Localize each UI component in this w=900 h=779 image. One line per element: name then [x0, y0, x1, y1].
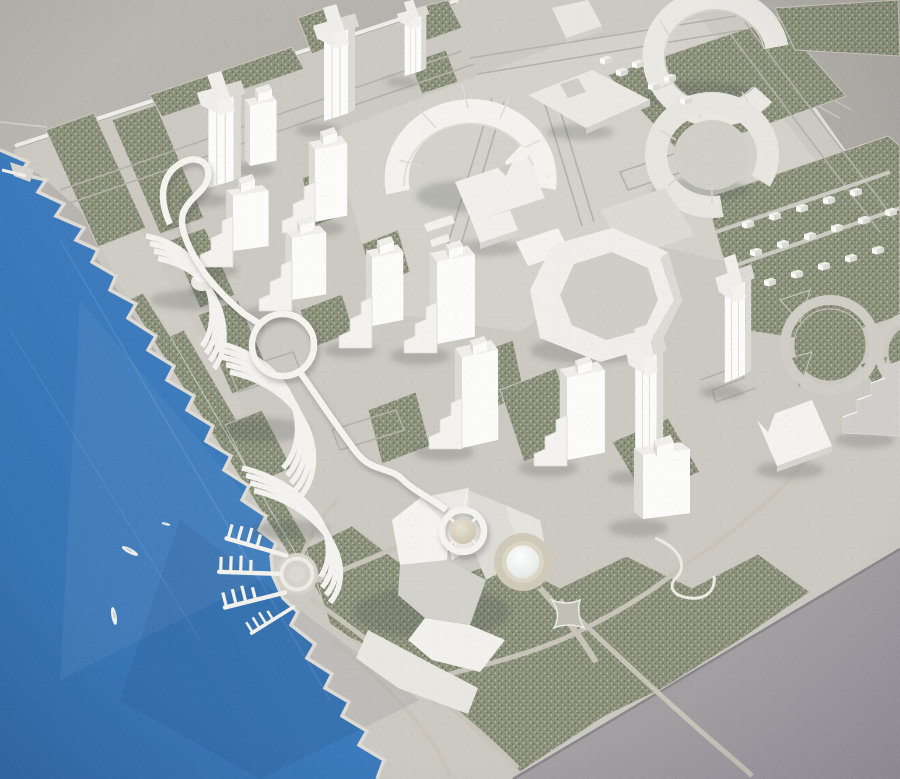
model-photo-canvas [0, 0, 900, 779]
vignette-overlay [0, 0, 900, 779]
photo-architectural-model [0, 0, 900, 779]
